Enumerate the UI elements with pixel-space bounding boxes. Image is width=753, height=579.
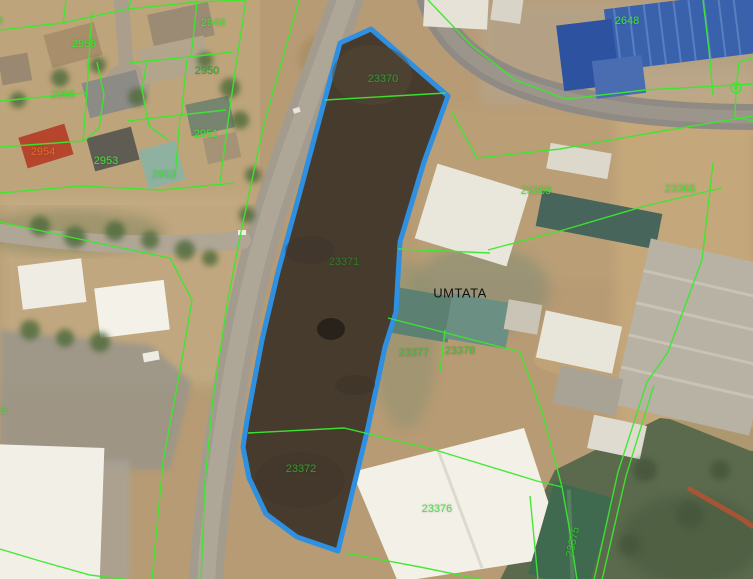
satellite-map[interactable]: 2949295629502955295129542953295223370264… xyxy=(0,0,753,579)
map-canvas xyxy=(0,0,753,579)
